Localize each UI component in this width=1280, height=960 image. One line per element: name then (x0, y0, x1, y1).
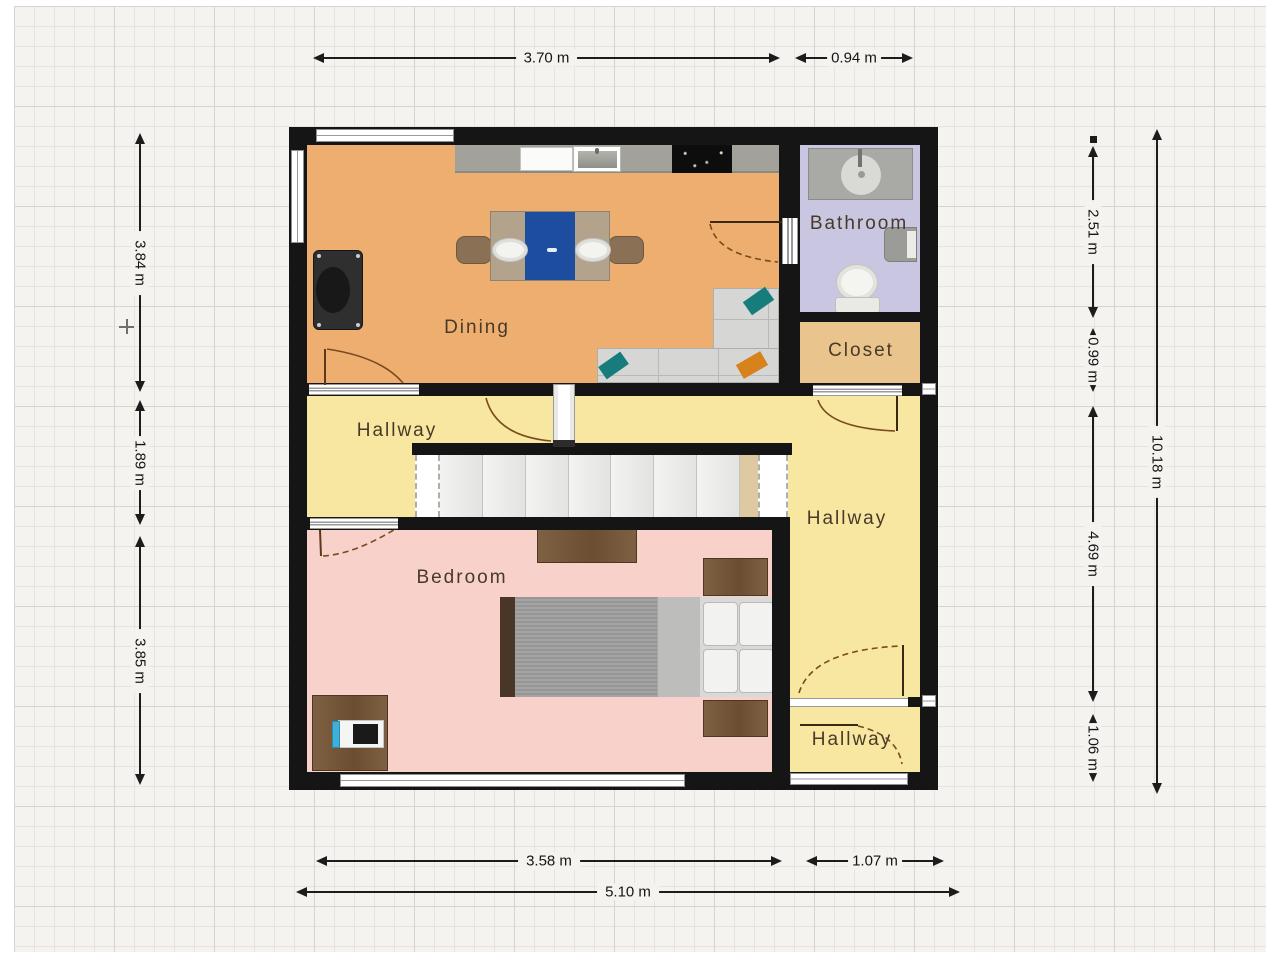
dining-table[interactable] (490, 211, 610, 281)
stair-landing-step (740, 455, 758, 517)
doorway-dining-hallway[interactable] (309, 384, 419, 395)
toilet[interactable] (835, 264, 878, 312)
dining-chair[interactable] (608, 236, 644, 264)
stair-step (440, 455, 483, 517)
wall-stairs-top (412, 443, 792, 455)
computer-tower[interactable] (332, 721, 340, 748)
kitchen-cabinet[interactable] (520, 147, 573, 171)
staircase-rail (758, 455, 788, 517)
dresser[interactable] (537, 529, 637, 563)
nightstand[interactable] (703, 700, 768, 737)
shower[interactable] (808, 148, 913, 200)
room-label-hallway-right: Hallway (807, 508, 888, 530)
computer-screen (353, 724, 378, 744)
dimension-label: 3.85 m (132, 629, 149, 693)
floorplan-canvas: Dining Bathroom Closet Hallway Hallway H… (0, 0, 1280, 960)
sofa-seam (718, 349, 719, 382)
nightstand[interactable] (703, 558, 768, 596)
sofa-seam (658, 349, 659, 382)
wall-notch (922, 695, 936, 707)
faucet-icon (595, 148, 599, 154)
doorway-bedroom[interactable] (310, 518, 398, 529)
dimension-right-hallway: 4.69 m (1086, 406, 1100, 702)
stair-step (697, 455, 740, 517)
wall-bedroom-hallway (772, 530, 790, 772)
origin-cross-marker (119, 319, 134, 334)
toilet-bowl (836, 264, 878, 301)
room-floor-hallway-right[interactable] (779, 396, 920, 707)
wall-sink-ledge (907, 231, 916, 258)
pillow (739, 602, 774, 646)
dining-chair[interactable] (456, 236, 492, 264)
stair-step (483, 455, 526, 517)
dimension-label: 1.07 m (848, 853, 902, 870)
dimension-left-bottom: 3.85 m (133, 536, 147, 785)
dimension-right-closet: 0.99 m (1086, 328, 1100, 392)
pillow (703, 649, 738, 693)
window[interactable] (790, 773, 908, 785)
table-decor (547, 248, 557, 252)
dimension-label: 0.99 m (1085, 335, 1102, 385)
staircase[interactable] (440, 455, 740, 517)
dimension-right-total: 10.18 m (1150, 129, 1164, 794)
room-label-hallway-bottom: Hallway (812, 729, 893, 751)
dimension-top-side: 0.94 m (795, 51, 913, 65)
bed-blanket (515, 597, 657, 697)
room-label-dining: Dining (444, 317, 510, 339)
piano-lid (316, 267, 350, 313)
room-label-bedroom: Bedroom (416, 567, 507, 589)
dimension-label: 3.70 m (516, 50, 578, 67)
dimension-label: 10.18 m (1149, 425, 1166, 497)
plate (575, 238, 611, 262)
room-label-closet: Closet (828, 340, 894, 362)
bed-sheet-fold (657, 597, 701, 697)
dimension-bottom-side: 1.07 m (806, 854, 944, 868)
dimension-label: 3.84 m (132, 231, 149, 295)
dimension-label: 1.89 m (132, 436, 149, 490)
wall-hallway-divider-left-stub (772, 697, 790, 707)
dimension-left-top: 3.84 m (133, 133, 147, 392)
dimension-label: 1.06 m (1085, 723, 1102, 773)
window[interactable] (340, 774, 685, 787)
piano-corner-dot (317, 254, 321, 258)
dimension-square-marker (1090, 136, 1097, 143)
wall-outer-right (920, 127, 938, 790)
stair-step (569, 455, 612, 517)
dimension-left-middle: 1.89 m (133, 400, 147, 525)
kitchen-sink[interactable] (573, 146, 621, 172)
stair-step (526, 455, 569, 517)
bed-footboard (500, 597, 515, 697)
stair-step (654, 455, 697, 517)
door-leaf-foot (553, 440, 575, 447)
wall-hallway-divider-right-stub (908, 697, 920, 707)
dimension-right-bathroom: 2.51 m (1086, 146, 1100, 318)
piano[interactable] (313, 250, 363, 330)
wall-bathroom-closet (779, 312, 920, 322)
window[interactable] (316, 129, 454, 142)
dimension-right-entry: 1.06 m (1086, 714, 1100, 782)
shower-drain (858, 171, 865, 178)
pillow (739, 649, 774, 693)
dimension-label: 0.94 m (827, 50, 881, 67)
shower-faucet-icon (858, 149, 862, 167)
doorway-closet[interactable] (813, 385, 902, 396)
dimension-label: 4.69 m (1085, 522, 1102, 586)
dimension-label: 3.58 m (518, 853, 580, 870)
doorway-hallway-bottom[interactable] (790, 698, 908, 707)
plate (492, 238, 528, 262)
toilet-tank (835, 297, 880, 313)
sofa-seam (598, 375, 778, 376)
dimension-label: 5.10 m (597, 884, 659, 901)
table-runner (525, 212, 575, 280)
room-label-hallway-left: Hallway (357, 420, 438, 442)
staircase-rail (415, 455, 440, 517)
dimension-label: 2.51 m (1085, 200, 1102, 264)
computer[interactable] (338, 720, 384, 748)
stair-step (611, 455, 654, 517)
dimension-top-main: 3.70 m (313, 51, 780, 65)
doorway-dining-bathroom[interactable] (782, 218, 798, 264)
dimension-bottom-main: 3.58 m (316, 854, 782, 868)
room-label-bathroom: Bathroom (810, 213, 908, 235)
window[interactable] (291, 150, 304, 243)
stove[interactable] (672, 145, 732, 173)
pillow (703, 602, 738, 646)
dimension-bottom-total: 5.10 m (296, 885, 960, 899)
bed[interactable] (500, 597, 787, 697)
wall-dining-bathroom (779, 145, 800, 396)
door-leaf-hallway[interactable] (553, 384, 575, 442)
wall-notch (922, 383, 936, 395)
